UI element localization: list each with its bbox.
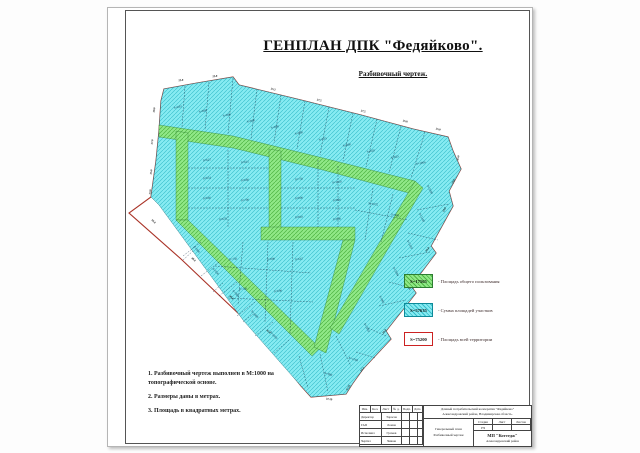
dimension-label: 27.5 bbox=[360, 109, 366, 113]
plot-area-label: S=750 bbox=[229, 257, 238, 262]
tb-stage-value: РЧ bbox=[474, 425, 493, 430]
legend-swatch-red-outline: S=75200 bbox=[404, 332, 433, 346]
dimension-label: 25.0 bbox=[212, 75, 218, 79]
tb-col-izm: Изм. bbox=[360, 406, 371, 413]
tb-org-region: Александровский район bbox=[486, 439, 519, 443]
tb-empty bbox=[418, 413, 423, 421]
legend-value: S=75200 bbox=[410, 337, 427, 342]
plot-area-label: S=800 bbox=[267, 257, 276, 262]
tb-empty bbox=[410, 429, 418, 437]
note-3: 3. Площадь в квадратных метрах. bbox=[148, 407, 313, 416]
dimension-label: 25.0 bbox=[178, 79, 184, 83]
page-title: ГЕНПЛАН ДПК "Федяйково". bbox=[218, 38, 528, 55]
dimension-label: 35.2 bbox=[270, 87, 276, 91]
plot-area-label: S=690 bbox=[274, 289, 283, 294]
tb-col-nd: № д. bbox=[392, 406, 403, 413]
tb-empty bbox=[402, 429, 410, 437]
tb-col-podp: Подп. bbox=[402, 406, 413, 413]
legend-label: - Сумма площадей участков bbox=[438, 308, 493, 313]
tb-role: Директор bbox=[360, 413, 382, 421]
dimension-label: 37.29 bbox=[326, 398, 333, 402]
tb-col-list: Лист bbox=[381, 406, 392, 413]
note-1: 1. Разбивочный чертеж выполнен в М:1000 … bbox=[148, 370, 313, 388]
legend-value: S=17565 bbox=[410, 279, 427, 284]
legend-label: - Площадь всей территории bbox=[438, 337, 492, 342]
tb-doc-line2: Разбивочный чертеж bbox=[433, 433, 463, 438]
tb-role: Чертил bbox=[360, 437, 382, 445]
tb-empty bbox=[402, 421, 410, 429]
tb-empty bbox=[410, 437, 418, 445]
tb-sheet-label: Лист bbox=[493, 419, 512, 424]
tb-empty bbox=[410, 413, 418, 421]
dimension-label: 23.0 bbox=[149, 189, 152, 195]
tb-role: ГАП bbox=[360, 421, 382, 429]
tb-name: Громов bbox=[382, 429, 402, 437]
dimension-label: 29.0 bbox=[153, 107, 156, 113]
legend: S=17565 - Площадь общего пользования S=5… bbox=[404, 274, 529, 361]
drawing-sheet: ГЕНПЛАН ДПК "Федяйково". Разбивочный чер… bbox=[107, 7, 533, 447]
legend-value: S=57635 bbox=[410, 308, 427, 313]
tb-empty bbox=[402, 413, 410, 421]
title-block-signatures: Изм. Кол. Лист № д. Подп. Дата Директор … bbox=[360, 406, 424, 446]
site-plan-map: S=693S=800S=800S=800S=800S=800S=815S=800… bbox=[123, 70, 473, 415]
tb-sheets-label: Листов bbox=[512, 419, 531, 424]
tb-empty bbox=[418, 429, 423, 437]
tb-empty bbox=[410, 421, 418, 429]
plot-area-label: S=720 bbox=[239, 287, 248, 292]
dimension-label: 27.0 bbox=[151, 139, 154, 145]
tb-name: Тарасов bbox=[382, 413, 402, 421]
dimension-label: 35.0 bbox=[457, 155, 461, 161]
dimension-label: 25.8 bbox=[402, 119, 408, 123]
legend-item-total-territory: S=75200 - Площадь всей территории bbox=[404, 332, 529, 346]
legend-label: - Площадь общего пользования bbox=[438, 279, 500, 284]
legend-swatch-green-hatch: S=17565 bbox=[404, 274, 433, 288]
plot-area-label: S=647 bbox=[295, 257, 304, 262]
dimension-label: 25.0 bbox=[150, 169, 153, 175]
tb-sheet-value bbox=[493, 425, 512, 430]
note-2: 2. Размеры даны в метрах. bbox=[148, 393, 313, 402]
tb-sheets-value bbox=[512, 425, 531, 430]
tb-stage-label: Стадия bbox=[474, 419, 493, 424]
title-block-main: Дачный потребительский кооператив "Федяй… bbox=[424, 406, 531, 446]
tb-role: Исполнил bbox=[360, 429, 382, 437]
notes: 1. Разбивочный чертеж выполнен в М:1000 … bbox=[148, 370, 313, 421]
legend-item-common-area: S=17565 - Площадь общего пользования bbox=[404, 274, 529, 288]
tb-empty bbox=[402, 437, 410, 445]
title-block: Изм. Кол. Лист № д. Подп. Дата Директор … bbox=[359, 405, 532, 447]
tb-empty bbox=[418, 437, 423, 445]
dimension-label: 27.5 bbox=[316, 98, 322, 102]
tb-name: Чижов bbox=[382, 437, 402, 445]
tb-name: Ломов bbox=[382, 421, 402, 429]
tb-col-kol: Кол. bbox=[371, 406, 382, 413]
dimension-label: 35.0 bbox=[435, 127, 441, 131]
legend-item-plots-sum: S=57635 - Сумма площадей участков bbox=[404, 303, 529, 317]
legend-swatch-cyan-hatch: S=57635 bbox=[404, 303, 433, 317]
tb-col-data: Дата bbox=[413, 406, 424, 413]
tb-empty bbox=[418, 421, 423, 429]
tb-project-line2: Александровский район, Владимирская обла… bbox=[442, 412, 512, 417]
